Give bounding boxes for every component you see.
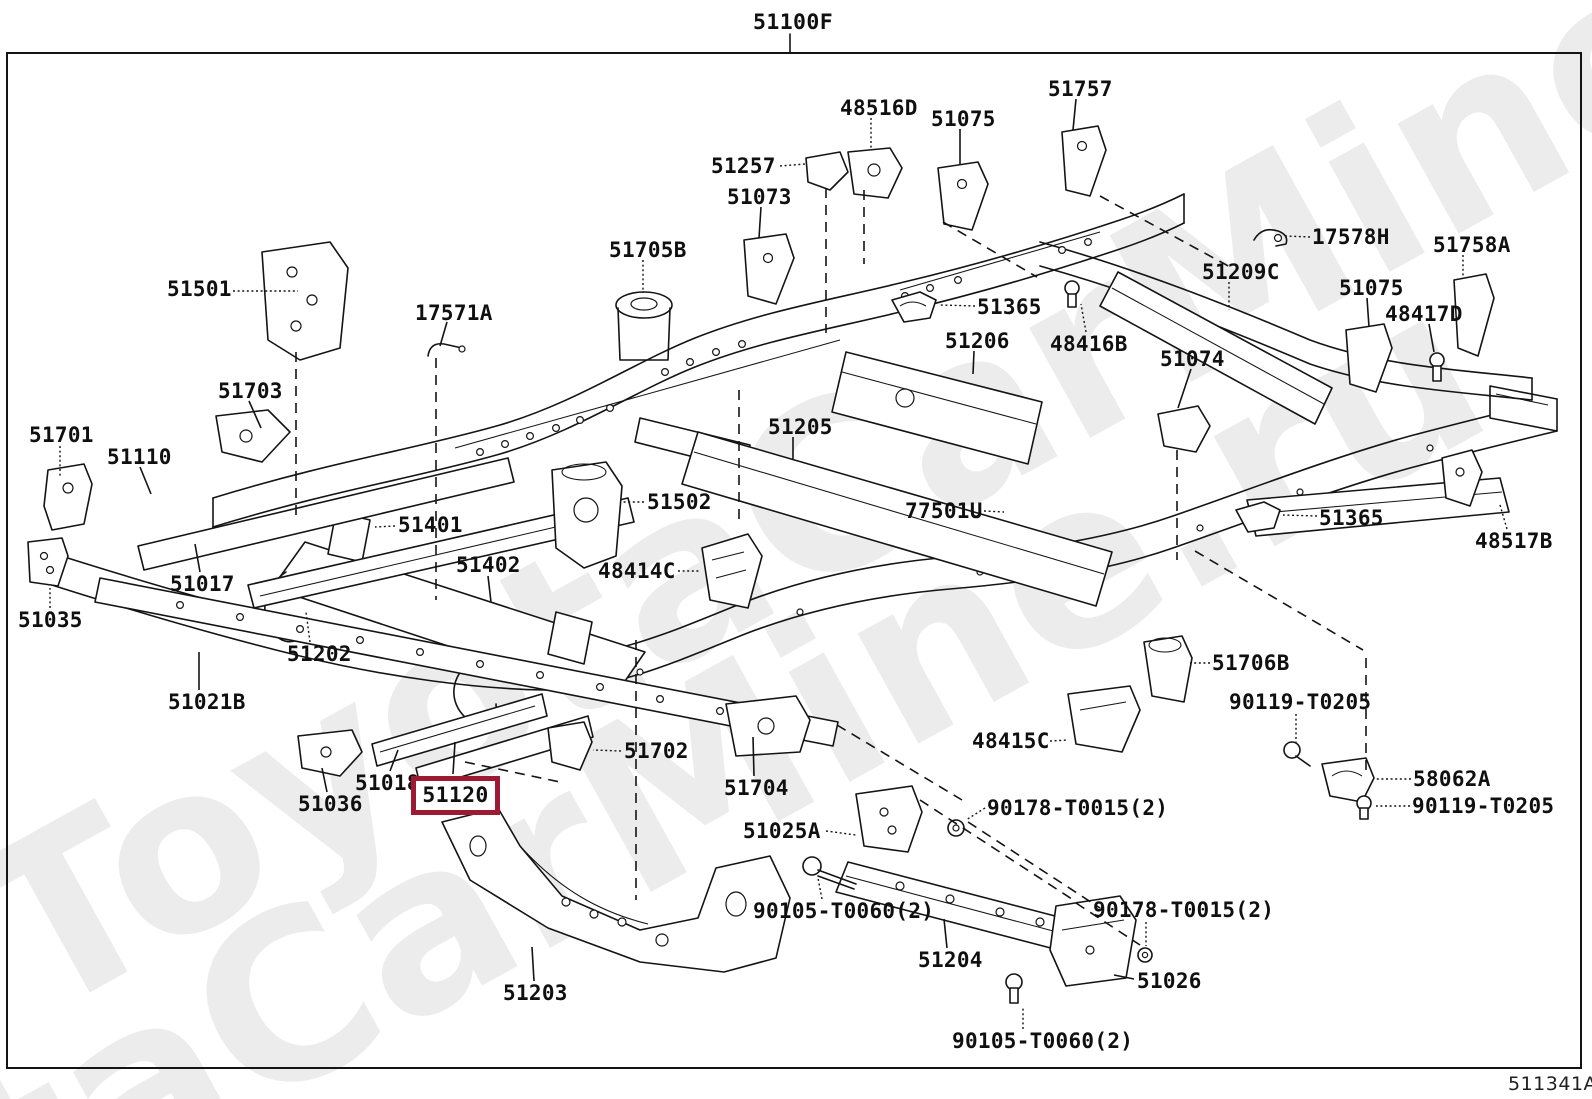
part-label-90178-T0015-left[interactable]: 90178-T0015(2) <box>987 798 1168 819</box>
part-label-51365-left[interactable]: 51365 <box>977 297 1042 318</box>
part-label-51017[interactable]: 51017 <box>170 574 235 595</box>
part-label-48414C[interactable]: 48414C <box>598 561 676 582</box>
part-label-51204[interactable]: 51204 <box>918 950 983 971</box>
part-label-51401[interactable]: 51401 <box>398 515 463 536</box>
part-label-51705B[interactable]: 51705B <box>609 240 687 261</box>
part-label-51035[interactable]: 51035 <box>18 610 83 631</box>
part-label-48516D[interactable]: 48516D <box>840 98 918 119</box>
part-label-51502[interactable]: 51502 <box>647 492 712 513</box>
part-label-48517B[interactable]: 48517B <box>1475 531 1553 552</box>
part-label-51209C[interactable]: 51209C <box>1202 262 1280 283</box>
part-label-51073[interactable]: 51073 <box>727 187 792 208</box>
part-label-51021B[interactable]: 51021B <box>168 692 246 713</box>
part-label-90178-T0015-right[interactable]: 90178-T0015(2) <box>1093 900 1274 921</box>
part-label-51704[interactable]: 51704 <box>724 778 789 799</box>
part-label-48416B[interactable]: 48416B <box>1050 334 1128 355</box>
part-label-77501U[interactable]: 77501U <box>905 501 983 522</box>
part-label-51758A[interactable]: 51758A <box>1433 235 1511 256</box>
part-label-51701[interactable]: 51701 <box>29 425 94 446</box>
part-label-51206[interactable]: 51206 <box>945 331 1010 352</box>
part-label-51402[interactable]: 51402 <box>456 555 521 576</box>
part-label-17578H[interactable]: 17578H <box>1312 227 1390 248</box>
diagram-code: 511341A <box>1508 1073 1592 1095</box>
part-label-51257[interactable]: 51257 <box>711 156 776 177</box>
part-label-51365-right[interactable]: 51365 <box>1319 508 1384 529</box>
part-label-51018[interactable]: 51018 <box>355 773 420 794</box>
part-label-51703[interactable]: 51703 <box>218 381 283 402</box>
part-label-51501[interactable]: 51501 <box>167 279 232 300</box>
part-group-title: 51100F <box>753 10 833 35</box>
part-label-90119-T0205-lower[interactable]: 90119-T0205 <box>1412 796 1554 817</box>
part-label-51026[interactable]: 51026 <box>1137 971 1202 992</box>
part-label-51202[interactable]: 51202 <box>287 644 352 665</box>
highlighted-part-label[interactable]: 51120 <box>411 776 500 815</box>
part-label-17571A[interactable]: 17571A <box>415 303 493 324</box>
part-label-51702[interactable]: 51702 <box>624 741 689 762</box>
part-label-51110[interactable]: 51110 <box>107 447 172 468</box>
part-label-48415C[interactable]: 48415C <box>972 731 1050 752</box>
part-label-48417D[interactable]: 48417D <box>1385 304 1463 325</box>
part-label-51075-right[interactable]: 51075 <box>1339 278 1404 299</box>
part-label-90105-T0060-upper[interactable]: 90105-T0060(2) <box>753 901 934 922</box>
part-label-51075-top[interactable]: 51075 <box>931 109 996 130</box>
parts-diagram: ToyotaCarMine.ru ToyotaCarMine.ru <box>0 0 1592 1099</box>
part-label-51203[interactable]: 51203 <box>503 983 568 1004</box>
part-label-90119-T0205-upper[interactable]: 90119-T0205 <box>1229 692 1371 713</box>
part-label-58062A[interactable]: 58062A <box>1413 769 1491 790</box>
part-label-51706B[interactable]: 51706B <box>1212 653 1290 674</box>
part-label-51025A[interactable]: 51025A <box>743 821 821 842</box>
part-label-51036[interactable]: 51036 <box>298 794 363 815</box>
part-label-51205[interactable]: 51205 <box>768 417 833 438</box>
part-label-51757[interactable]: 51757 <box>1048 79 1113 100</box>
part-label-90105-T0060-bottom[interactable]: 90105-T0060(2) <box>952 1031 1133 1052</box>
part-label-51074[interactable]: 51074 <box>1160 349 1225 370</box>
